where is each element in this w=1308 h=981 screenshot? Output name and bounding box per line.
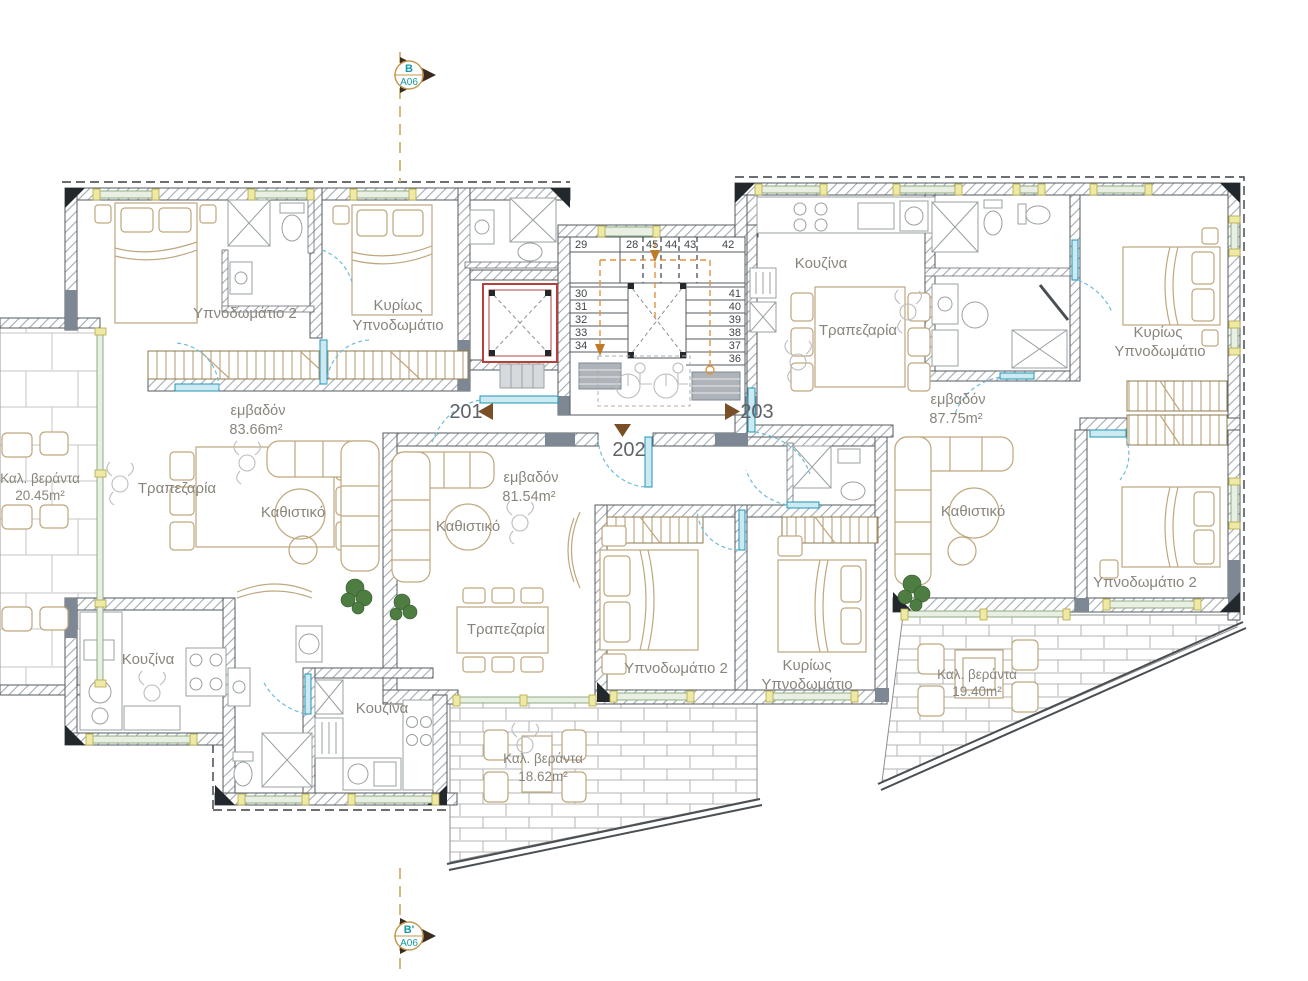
room-label-living-201: Καθιστικό (261, 504, 325, 521)
bathroom-201-a (228, 200, 304, 294)
floor-plan-drawing: 29 28 45 44 43 42 30 31 32 33 34 41 40 3… (0, 0, 1308, 981)
stair-num: 39 (729, 314, 741, 326)
room-label-living-203: Καθιστικό (941, 503, 1005, 520)
stair-num: 43 (684, 239, 696, 251)
area-word-203: εμβαδόν (931, 392, 986, 408)
unit-number-201: 201 (449, 401, 482, 423)
tv-console-201 (237, 584, 312, 598)
sofa-202 (392, 452, 494, 582)
stair-num: 45 (646, 239, 658, 251)
stair-num: 29 (575, 239, 587, 251)
bed-202-bedroom2 (600, 526, 698, 674)
section-sheet-top: A06 (400, 77, 418, 88)
veranda-area-right: 19.40m² (952, 684, 1002, 699)
area-value-201: 83.66m² (229, 422, 282, 438)
veranda-area-left: 20.45m² (15, 488, 65, 503)
veranda-area-middle: 18.62m² (518, 769, 568, 784)
room-label-bedroom2-202: Υπνοδωμάτιο 2 (624, 660, 728, 677)
bathrooms-203 (932, 200, 1068, 368)
room-label-bedroom2-203: Υπνοδωμάτιο 2 (1093, 574, 1197, 591)
room-label-kitchen-203: Κουζίνα (795, 255, 848, 272)
unit-number-203: 203 (740, 401, 773, 423)
stair-num: 42 (722, 239, 734, 251)
stair-num: 28 (626, 239, 638, 251)
stair-num: 32 (575, 314, 587, 326)
section-marker-top: B A06 (394, 52, 436, 182)
room-label-kitchen-202: Κουζίνα (356, 700, 409, 717)
unit-number-202: 202 (612, 439, 645, 461)
stair-num: 44 (665, 239, 677, 251)
room-label-kitchen-201: Κουζίνα (122, 651, 175, 668)
stair-num: 31 (575, 301, 587, 313)
room-label-master-201-l1: Κυρίως (373, 297, 422, 314)
area-word-202: εμβαδόν (504, 470, 559, 486)
door-201-bath (322, 250, 352, 282)
bed-203-bedroom2 (1100, 487, 1220, 578)
room-label-master-202-l2: Υπνοδωμάτιο (761, 676, 852, 693)
room-label-dining-202: Τραπεζαρία (467, 621, 546, 638)
room-label-master-203-l2: Υπνοδωμάτιο (1114, 343, 1205, 360)
stair-num: 38 (729, 327, 741, 339)
room-label-master-203-l1: Κυρίως (1133, 324, 1182, 341)
veranda-label-left: Καλ. βεράντα (0, 471, 80, 486)
plant-1 (341, 579, 372, 614)
door-203-bedroom2 (1090, 430, 1129, 480)
area-word-201: εμβαδόν (231, 403, 286, 419)
section-sheet-bottom: A06 (400, 938, 418, 949)
stair-num: 40 (729, 301, 741, 313)
room-label-master-201-l2: Υπνοδωμάτιο (352, 317, 443, 334)
area-value-203: 87.75m² (929, 411, 982, 427)
floor-plan-page: 29 28 45 44 43 42 30 31 32 33 34 41 40 3… (0, 0, 1308, 981)
arrow-down-icon (614, 424, 631, 437)
bathroom-201-b (470, 198, 556, 261)
section-marker-bottom: B' A06 (394, 868, 436, 975)
stair-num: 30 (575, 288, 587, 300)
bathroom-202-master (793, 446, 865, 500)
room-label-bedroom2-201: Υπνοδωμάτιο 2 (193, 305, 297, 322)
section-code-top: B (405, 63, 413, 75)
section-code-bottom: B' (404, 924, 415, 936)
veranda-label-middle: Καλ. βεράντα (503, 751, 583, 766)
stair-num: 37 (729, 340, 741, 352)
room-label-dining-201: Τραπεζαρία (138, 480, 217, 497)
area-value-202: 81.54m² (502, 489, 555, 505)
dining-set-203 (791, 287, 930, 391)
elevator-shaft (483, 284, 557, 362)
stair-num: 33 (575, 327, 587, 339)
bed-202-master (778, 536, 866, 652)
room-label-living-202: Καθιστικό (436, 518, 500, 535)
unit-marker-201: 201 (449, 401, 493, 423)
stair-num: 41 (729, 288, 741, 300)
room-label-master-202-l1: Κυρίως (782, 657, 831, 674)
unit-marker-202: 202 (612, 424, 645, 461)
room-label-dining-203: Τραπεζαρία (819, 322, 898, 339)
veranda-label-right: Καλ. βεράντα (937, 667, 1017, 682)
tv-console-202 (568, 512, 580, 588)
stair-num: 34 (575, 340, 587, 352)
stair-num: 36 (729, 353, 741, 365)
